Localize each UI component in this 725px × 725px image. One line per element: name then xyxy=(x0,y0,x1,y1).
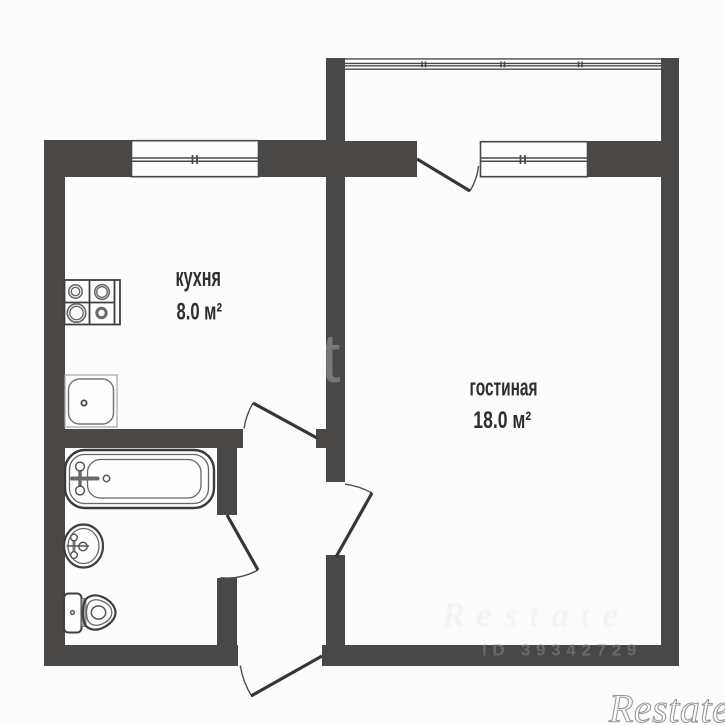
svg-text:t: t xyxy=(321,319,340,397)
svg-text:18.0 м²: 18.0 м² xyxy=(473,407,531,434)
svg-text:ID 39342729: ID 39342729 xyxy=(482,641,642,660)
svg-text:кухня: кухня xyxy=(176,264,222,292)
svg-text:Restate: Restate xyxy=(608,686,725,725)
svg-text:8.0 м²: 8.0 м² xyxy=(177,299,223,326)
svg-text:гостиная: гостиная xyxy=(470,375,538,402)
